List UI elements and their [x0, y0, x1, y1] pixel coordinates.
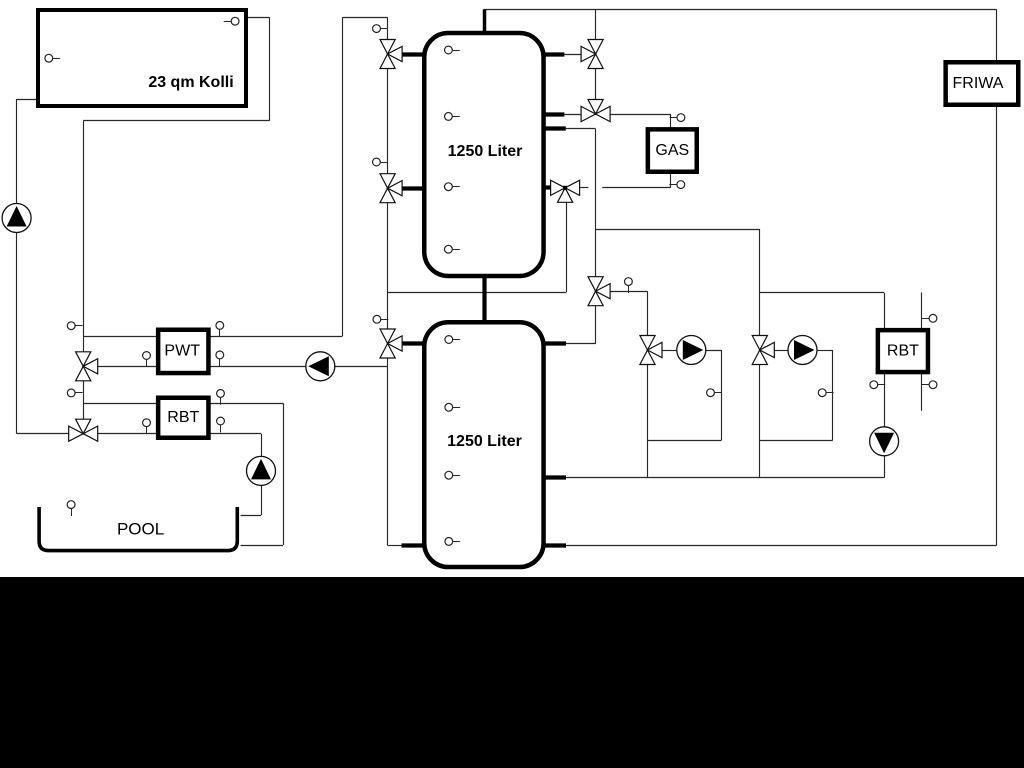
svg-text:GAS: GAS: [655, 142, 689, 159]
svg-text:FRIWA: FRIWA: [953, 75, 1004, 92]
svg-text:RBT: RBT: [167, 409, 199, 426]
svg-text:POOL: POOL: [117, 520, 164, 539]
svg-text:1250 Liter: 1250 Liter: [447, 433, 522, 450]
svg-text:RBT: RBT: [887, 342, 919, 359]
svg-text:PWT: PWT: [164, 343, 200, 360]
svg-text:1250 Liter: 1250 Liter: [448, 143, 523, 160]
svg-text:23 qm Kolli: 23 qm Kolli: [148, 74, 233, 91]
